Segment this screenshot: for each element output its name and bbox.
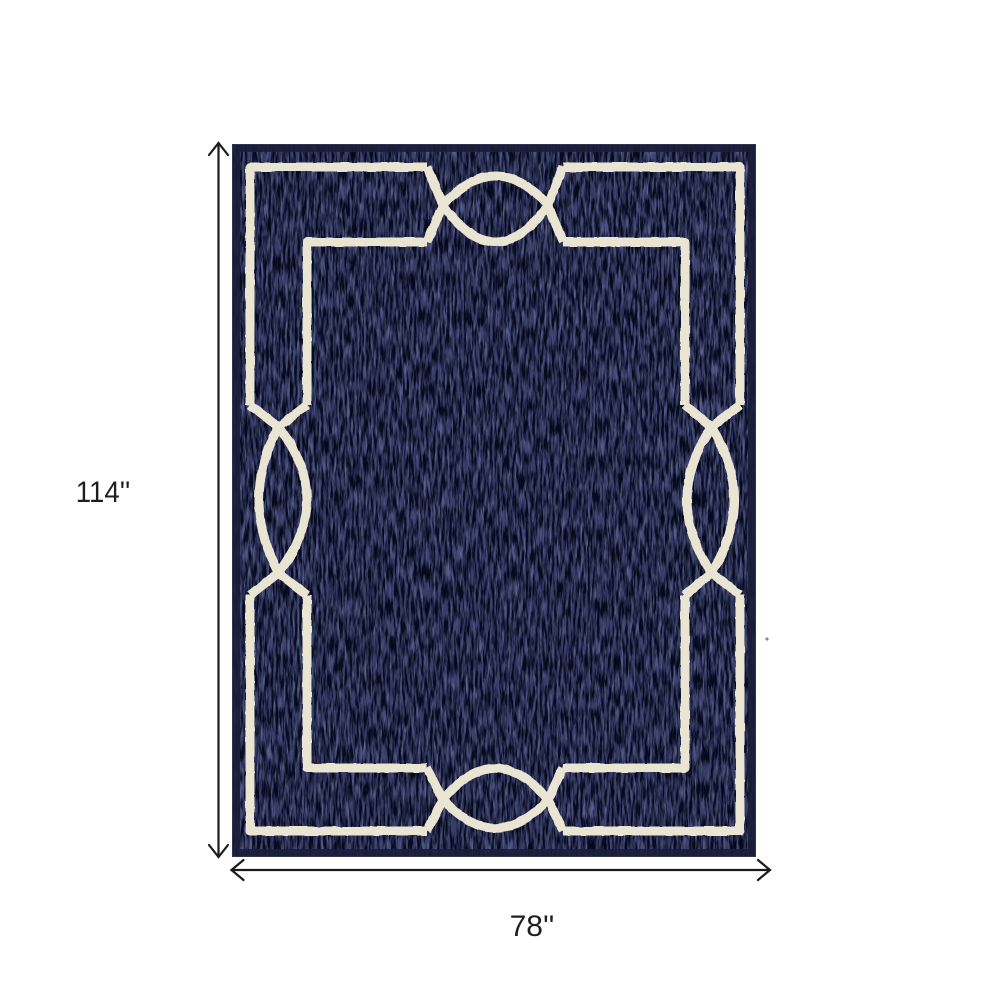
svg-text:114'': 114'' (76, 476, 131, 509)
svg-text:78'': 78'' (510, 910, 555, 943)
